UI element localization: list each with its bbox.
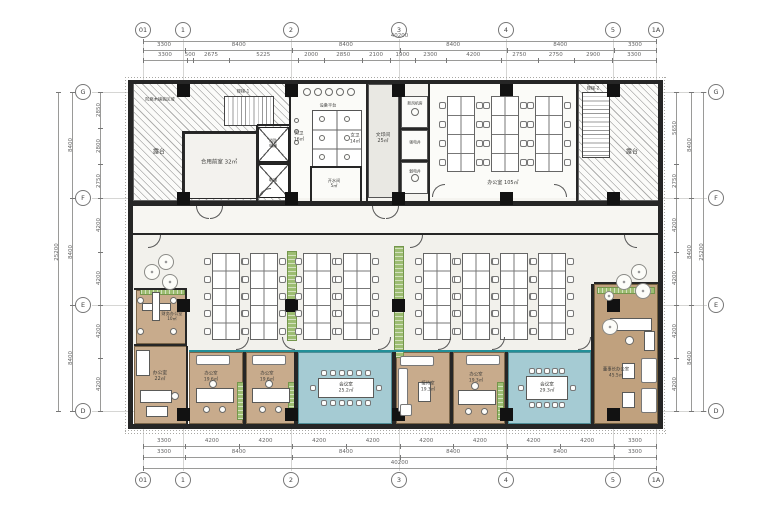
dim-bottom-total-tick	[656, 466, 657, 471]
dim-bottom-minors-tick	[143, 444, 144, 449]
seat-circle	[294, 118, 299, 123]
office-chair	[567, 293, 574, 300]
office-chair	[567, 328, 574, 335]
exterior-wall-finish	[124, 429, 667, 434]
dim-right-minors-tick	[674, 198, 679, 199]
grid-bubble-1: 1	[175, 22, 191, 38]
meeting-chair	[330, 370, 336, 376]
grid-bubble-G: G	[75, 84, 91, 100]
grid-bubble-1A: 1A	[648, 472, 664, 488]
structural-column	[500, 192, 513, 205]
wall	[360, 168, 362, 201]
office-chair	[492, 328, 499, 335]
meeting-chair	[544, 368, 550, 374]
dim-top-majors-tick	[614, 48, 615, 53]
dim-bottom-majors-value: 8400	[225, 450, 253, 456]
grid-bubble-F: F	[75, 190, 91, 206]
dim-top-minors-tick	[612, 58, 613, 63]
dim-top-minors-value: 3300	[151, 53, 179, 59]
office-chair	[530, 293, 537, 300]
office-chair	[476, 159, 483, 166]
dim-bottom-majors-tick	[143, 455, 144, 460]
office-chair	[439, 121, 446, 128]
stair-2	[582, 92, 610, 158]
office-chair	[454, 310, 461, 317]
office-chair	[564, 121, 571, 128]
office-chair	[242, 258, 249, 265]
plant	[144, 264, 160, 280]
meeting-chair	[559, 368, 565, 374]
office-chair	[530, 276, 537, 283]
office-chair	[204, 310, 211, 317]
office-chair	[567, 276, 574, 283]
meeting-chair	[347, 370, 353, 376]
dim-left-total-tick	[56, 92, 61, 93]
wall	[257, 162, 290, 164]
office-chair	[295, 293, 302, 300]
plant	[604, 291, 614, 301]
wall	[183, 131, 258, 133]
wall	[134, 288, 187, 290]
dim-top-majors-value: 8400	[546, 43, 574, 49]
dim-top-minors-value: 5225	[249, 53, 277, 59]
office-chair	[372, 310, 379, 317]
structural-column	[607, 84, 620, 97]
dim-right-minors-value: 2750	[673, 167, 679, 195]
room-label: 露台	[626, 148, 638, 156]
dim-left-total-tick	[56, 411, 61, 412]
dim-bottom-minors-tick	[185, 444, 186, 449]
dim-left-minors-value: 4200	[97, 264, 103, 292]
seat-circle	[219, 406, 226, 413]
seat-circle	[319, 135, 325, 141]
office-chair	[492, 276, 499, 283]
grid-bubble-5: 5	[605, 22, 621, 38]
dim-left-minors-tick	[98, 164, 103, 165]
office-chair	[279, 293, 286, 300]
wall	[366, 84, 368, 201]
dim-left-minors-value: 4200	[97, 370, 103, 398]
dim-bottom-minors-value: 4200	[466, 439, 494, 445]
wall	[128, 80, 133, 429]
structural-column	[285, 408, 298, 421]
plant	[635, 283, 651, 299]
dim-top-minors-value: 2750	[542, 53, 570, 59]
dim-right-minors-value: 4200	[673, 317, 679, 345]
dim-bottom-minors-value: 4200	[198, 439, 226, 445]
office-chair	[492, 310, 499, 317]
office-chair	[335, 276, 342, 283]
exterior-wall-finish	[663, 76, 667, 433]
meeting-chair	[570, 385, 576, 391]
furniture-desk	[196, 388, 234, 403]
seat-circle	[137, 297, 144, 304]
room-label: 男卫 16㎡	[294, 131, 304, 142]
dim-right-total-tick	[701, 92, 706, 93]
dim-right-majors-tick	[689, 305, 694, 306]
plant	[158, 254, 174, 270]
office-chair	[335, 293, 342, 300]
meeting-chair	[536, 402, 542, 408]
plant	[162, 274, 178, 290]
dim-right-majors-tick	[689, 198, 694, 199]
dim-top-minors-tick	[324, 58, 325, 63]
desk-cluster	[462, 253, 490, 340]
office-chair	[454, 293, 461, 300]
seat-circle	[625, 336, 634, 345]
office-chair	[492, 293, 499, 300]
dim-top-minors-value: 2675	[197, 53, 225, 59]
desk-cluster	[535, 96, 563, 172]
dim-bottom-total	[143, 468, 656, 469]
dim-right-majors-value: 8400	[688, 131, 694, 159]
seat-circle	[319, 154, 325, 160]
dim-left-majors-value: 8400	[69, 238, 75, 266]
wall	[401, 160, 429, 162]
dim-left-majors-value: 8400	[69, 131, 75, 159]
dim-right-majors-value: 8400	[688, 238, 694, 266]
office-chair	[567, 258, 574, 265]
dim-left-minors-tick	[98, 128, 103, 129]
seat-circle	[314, 88, 322, 96]
room-label: 办公室 19.6㎡	[260, 372, 274, 383]
seat-circle	[344, 154, 350, 160]
room-label: 防腐木铺装区域	[145, 96, 174, 101]
office-chair	[483, 140, 490, 147]
furniture-sofa	[466, 355, 500, 365]
structural-column	[392, 192, 405, 205]
dim-right-minors-value: 4200	[673, 370, 679, 398]
meeting-chair	[529, 368, 535, 374]
meeting-chair	[365, 400, 371, 406]
dim-top-minors-tick	[143, 58, 144, 63]
furniture-desk	[136, 350, 150, 376]
grid-bubble-4: 4	[498, 472, 514, 488]
meeting-chair	[356, 370, 362, 376]
plant	[631, 264, 647, 280]
room-label: 办公室 19.3㎡	[469, 373, 483, 384]
office-chair	[527, 159, 534, 166]
wall	[591, 284, 594, 424]
wall	[185, 288, 187, 346]
room-label: 会议室 29.3㎡	[540, 382, 555, 393]
dim-top-minors-tick	[538, 58, 539, 63]
dim-bottom-majors-tick	[656, 455, 657, 460]
wall	[310, 166, 362, 168]
room-label: 楼梯-2	[587, 85, 600, 90]
room-label: 楼梯-1	[237, 88, 250, 93]
office-chair	[295, 328, 302, 335]
meeting-chair	[376, 385, 382, 391]
dim-bottom-minors-tick	[292, 444, 293, 449]
dim-top-minors	[143, 60, 656, 61]
dim-top-majors-tick	[292, 48, 293, 53]
office-chair	[372, 293, 379, 300]
wall	[243, 352, 246, 424]
dim-right-majors-tick	[689, 92, 694, 93]
dim-bottom-minors-value: 4200	[305, 439, 333, 445]
wall	[128, 424, 663, 429]
meeting-chair	[321, 400, 327, 406]
dim-bottom-minors-value: 3300	[150, 439, 178, 445]
office-chair	[295, 310, 302, 317]
dim-top-minors-value: 2100	[362, 53, 390, 59]
seat-circle	[481, 408, 488, 415]
meeting-chair	[321, 370, 327, 376]
dim-bottom-majors-value: 8400	[332, 450, 360, 456]
grid-bubble-E: E	[708, 297, 724, 313]
desk-cluster	[491, 96, 519, 172]
dim-bottom-minors-value: 4200	[573, 439, 601, 445]
furniture-sofa	[400, 356, 434, 366]
dim-top-majors-value: 8400	[225, 43, 253, 49]
seat-circle	[259, 406, 266, 413]
office-chair	[476, 121, 483, 128]
desk-cluster	[447, 96, 475, 172]
wall	[289, 84, 291, 201]
structural-column	[392, 84, 405, 97]
glass-partition	[189, 350, 591, 352]
structural-column	[607, 408, 620, 421]
dim-left-minors-tick	[98, 305, 103, 306]
seat-circle	[170, 328, 177, 335]
seat-circle	[347, 88, 355, 96]
dim-bottom-minors-value: 3300	[621, 439, 649, 445]
furniture-desk	[152, 292, 160, 321]
office-chair	[439, 102, 446, 109]
grid-bubble-1A: 1A	[648, 22, 664, 38]
dim-top-minors-value: 2000	[297, 53, 325, 59]
dim-top-minors-value: 2750	[505, 53, 533, 59]
dim-left-minors-value: 2800	[97, 132, 103, 160]
dim-right-minors-tick	[674, 164, 679, 165]
dim-right-majors-tick	[689, 411, 694, 412]
dim-left-majors-tick	[70, 92, 75, 93]
structural-column	[607, 192, 620, 205]
dim-top-minors-value: 2300	[416, 53, 444, 59]
office-chair	[372, 276, 379, 283]
grid-bubble-2: 2	[283, 22, 299, 38]
desk-cluster	[212, 253, 240, 340]
dim-top-minors-tick	[446, 58, 447, 63]
dim-bottom-majors-value: 8400	[546, 450, 574, 456]
office-chair	[204, 276, 211, 283]
office-chair	[439, 140, 446, 147]
desk-cluster	[250, 253, 278, 340]
dim-bottom-minors-value: 4200	[252, 439, 280, 445]
stair-1	[224, 96, 274, 126]
desk-cluster	[538, 253, 566, 340]
meeting-chair	[529, 402, 535, 408]
dim-top-minors-value: 4200	[459, 53, 487, 59]
room-label: 办公室 19.6㎡	[204, 372, 218, 383]
meeting-chair	[552, 402, 558, 408]
dim-left-minors-value: 4200	[97, 211, 103, 239]
furniture-desk	[252, 388, 290, 403]
office-chair	[483, 121, 490, 128]
seat-circle	[336, 88, 344, 96]
grid-bubble-G: G	[708, 84, 724, 100]
office-chair	[530, 310, 537, 317]
dim-right-minors-tick	[674, 358, 679, 359]
dim-left-majors-tick	[70, 411, 75, 412]
structural-column	[285, 84, 298, 97]
dim-top-minors-value: 2850	[329, 53, 357, 59]
office-chair	[567, 310, 574, 317]
office-chair	[204, 293, 211, 300]
office-chair	[527, 140, 534, 147]
furniture-desk	[146, 406, 168, 417]
dim-left-minors-tick	[98, 92, 103, 93]
structural-column	[177, 192, 190, 205]
dim-bottom-minors-tick	[400, 444, 401, 449]
dim-right-majors-value: 8400	[688, 344, 694, 372]
furniture-sofa	[641, 358, 657, 383]
dim-left-majors-value: 8400	[69, 344, 75, 372]
desk-cluster	[423, 253, 451, 340]
seat-circle	[319, 116, 325, 122]
dim-bottom-majors-tick	[292, 455, 293, 460]
dim-top-minors-tick	[656, 58, 657, 63]
office-chair	[204, 258, 211, 265]
meeting-chair	[347, 400, 353, 406]
grid-bubble-2: 2	[283, 472, 299, 488]
dim-bottom-total-value: 40200	[386, 461, 414, 467]
wall	[128, 233, 663, 235]
wall	[257, 124, 290, 126]
grid-bubble-5: 5	[605, 472, 621, 488]
room-label: 强电井	[409, 141, 420, 146]
dim-right-total-value: 25200	[700, 238, 706, 266]
dim-top-minors-value: 3300	[620, 53, 648, 59]
wall	[658, 80, 663, 429]
grid-bubble-E: E	[75, 297, 91, 313]
grid-bubble-3: 3	[391, 472, 407, 488]
dim-right-minors-tick	[674, 411, 679, 412]
structural-column	[177, 408, 190, 421]
dim-top-total-tick	[656, 39, 657, 44]
dim-bottom-majors-value: 3300	[621, 450, 649, 456]
wall	[450, 352, 453, 424]
room-label: 女卫 14㎡	[350, 133, 360, 144]
seat-circle	[325, 88, 333, 96]
wall	[576, 82, 578, 201]
grid-bubble-4: 4	[498, 22, 514, 38]
grid-bubble-1: 1	[175, 472, 191, 488]
seat-circle	[170, 297, 177, 304]
dim-left-majors-tick	[70, 305, 75, 306]
dim-top-minors-value: 1900	[388, 53, 416, 59]
dim-right-minors-value: 4200	[673, 211, 679, 239]
office-chair	[279, 310, 286, 317]
dim-left-majors-tick	[70, 198, 75, 199]
office-chair	[415, 293, 422, 300]
dim-top-majors-value: 8400	[439, 43, 467, 49]
furniture-desk	[140, 390, 172, 403]
room-label: 董事长办公室 45.5㎡	[603, 368, 629, 379]
office-chair	[454, 276, 461, 283]
seat-circle	[203, 406, 210, 413]
dim-right-minors-value: 5650	[673, 114, 679, 142]
dim-bottom-minors-tick	[507, 444, 508, 449]
meeting-chair	[365, 370, 371, 376]
office-chair	[415, 310, 422, 317]
wall	[428, 84, 430, 201]
office-chair	[483, 102, 490, 109]
desk-cluster	[303, 253, 331, 340]
structural-column	[177, 84, 190, 97]
office-chair	[564, 159, 571, 166]
dim-top-total-value: 40200	[386, 34, 414, 40]
office-chair	[530, 258, 537, 265]
room-label: 办公室 105㎡	[487, 180, 518, 186]
dim-right-total-tick	[701, 411, 706, 412]
meeting-chair	[330, 400, 336, 406]
dim-right-minors-tick	[674, 305, 679, 306]
dim-bottom-minors-tick	[614, 444, 615, 449]
furniture-sofa	[641, 388, 657, 413]
dim-bottom-minors-tick	[656, 444, 657, 449]
meeting-chair	[552, 368, 558, 374]
office-chair	[483, 159, 490, 166]
dim-left-minors-tick	[98, 198, 103, 199]
office-chair	[335, 310, 342, 317]
room-label: 新风机房	[407, 102, 422, 107]
office-chair	[454, 258, 461, 265]
room-label: 办公室 22㎡	[153, 371, 167, 383]
office-chair	[520, 159, 527, 166]
dim-bottom-total-tick	[143, 466, 144, 471]
office-chair	[372, 258, 379, 265]
office-chair	[476, 102, 483, 109]
seat-circle	[171, 392, 179, 400]
dim-bottom-majors-value: 8400	[439, 450, 467, 456]
dim-top-total	[143, 41, 656, 42]
grid-bubble-F: F	[708, 190, 724, 206]
dim-left-minors-value: 2750	[97, 167, 103, 195]
wall	[399, 84, 401, 201]
office-chair	[520, 121, 527, 128]
seat-circle	[137, 328, 144, 335]
dim-top-total-tick	[143, 39, 144, 44]
furniture-sofa	[400, 404, 412, 416]
dim-bottom-minors-value: 4200	[519, 439, 547, 445]
seat-circle	[275, 406, 282, 413]
seat-circle	[411, 108, 419, 116]
wall	[182, 131, 184, 201]
office-chair	[530, 328, 537, 335]
office-chair	[564, 102, 571, 109]
meeting-chair	[339, 400, 345, 406]
seat-circle	[344, 116, 350, 122]
office-chair	[242, 310, 249, 317]
dim-right-minors-tick	[674, 252, 679, 253]
dim-left-minors-tick	[98, 411, 103, 412]
office-chair	[242, 328, 249, 335]
grid-bubble-01: 01	[135, 472, 151, 488]
office-chair	[492, 258, 499, 265]
office-chair	[335, 328, 342, 335]
dim-bottom-majors-tick	[185, 455, 186, 460]
dim-top-majors-value: 8400	[332, 43, 360, 49]
room-label: 电梯	[269, 177, 277, 182]
wall	[134, 344, 187, 346]
grid-bubble-D: D	[708, 403, 724, 419]
room-label: 消防 电梯	[269, 138, 277, 148]
plant	[602, 319, 618, 335]
dim-top-minors-value: 2900	[579, 53, 607, 59]
office-chair	[564, 140, 571, 147]
